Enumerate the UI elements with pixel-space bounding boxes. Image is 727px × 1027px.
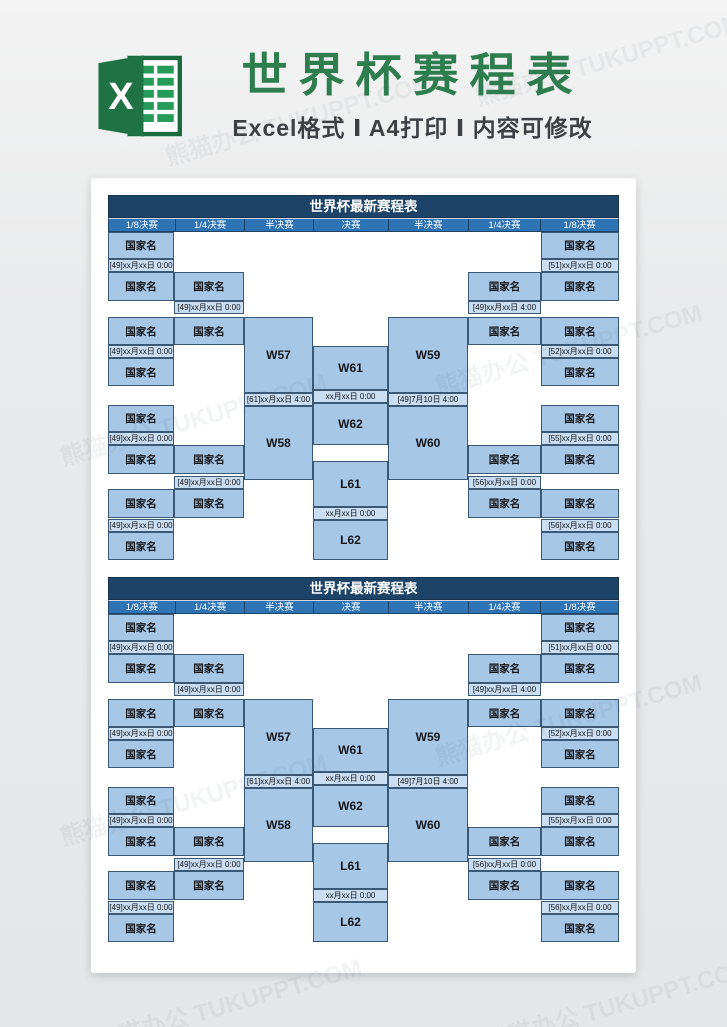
match-cell-w61[interactable]: W61 [313,346,388,390]
team-name-cell[interactable]: 国家名 [468,871,541,900]
match-cell-l61[interactable]: L61 [313,461,388,507]
round-header-right-1-4: 1/4决赛 [468,219,541,232]
match-cell-w57[interactable]: W57 [244,317,313,393]
match-date-cell[interactable]: [49]xx月xx日 0:00 [108,814,174,827]
team-name-cell[interactable]: 国家名 [468,317,541,345]
match-date-cell[interactable]: [49]xx月xx日 0:00 [174,476,244,489]
round-header-row: 1/8决赛 1/4决赛 半决赛 决赛 半决赛 1/4决赛 1/8决赛 [108,218,619,232]
team-name-cell[interactable]: 国家名 [468,445,541,474]
match-cell-w59[interactable]: W59 [388,317,468,393]
table-title: 世界杯最新赛程表 [108,195,619,218]
round-header-left-1-4: 1/4决赛 [175,601,245,614]
match-cell-w59[interactable]: W59 [388,699,468,775]
team-name-cell[interactable]: 国家名 [108,445,174,474]
sheet-page: 世界杯最新赛程表 1/8决赛 1/4决赛 半决赛 决赛 半决赛 1/4决赛 1/… [91,178,636,973]
team-name-cell[interactable]: 国家名 [174,317,244,345]
match-cell-l62[interactable]: L62 [313,520,388,560]
match-date-cell[interactable]: [49]xx月xx日 0:00 [108,727,174,740]
svg-text:X: X [108,76,134,118]
team-name-cell[interactable]: 国家名 [108,358,174,386]
round-header-final: 决赛 [313,601,388,614]
team-name-cell[interactable]: 国家名 [108,489,174,518]
match-date-cell[interactable]: [56]xx月xx日 0:00 [541,519,619,532]
match-date-cell[interactable]: [49]xx月xx日 0:00 [174,858,244,871]
team-name-cell[interactable]: 国家名 [541,914,619,942]
team-name-cell[interactable]: 国家名 [541,740,619,768]
match-date-cell[interactable]: [55]xx月xx日 0:00 [541,814,619,827]
team-name-cell[interactable]: 国家名 [108,654,174,683]
match-cell-w62[interactable]: W62 [313,403,388,445]
team-name-cell[interactable]: 国家名 [541,699,619,727]
bracket-table-bottom: 世界杯最新赛程表 1/8决赛 1/4决赛 半决赛 决赛 半决赛 1/4决赛 1/… [108,577,619,943]
team-name-cell[interactable]: 国家名 [108,232,174,259]
team-name-cell[interactable]: 国家名 [108,787,174,814]
match-cell-w60[interactable]: W60 [388,406,468,480]
page-title: 世界杯赛程表 [190,48,635,102]
banner-text: 世界杯赛程表 Excel格式 Ⅰ A4打印 Ⅰ 内容可修改 [190,48,635,143]
screenshot-root: 熊猫办公 TUKUPPT.COM 熊猫办公 TUKUPPT.COM X 世界杯赛… [0,0,727,1027]
match-date-cell[interactable]: [56]xx月xx日 0:00 [468,476,541,489]
page-subtitle: Excel格式 Ⅰ A4打印 Ⅰ 内容可修改 [190,109,635,143]
team-name-cell[interactable]: 国家名 [108,532,174,560]
round-header-left-1-8: 1/8决赛 [109,601,175,614]
bracket-grid: 国家名 [49]xx月xx日 0:00 国家名 国家名 [49]xx月xx日 0… [108,232,619,561]
team-name-cell[interactable]: 国家名 [541,827,619,856]
team-name-cell[interactable]: 国家名 [108,405,174,432]
round-header-right-1-8: 1/8决赛 [540,219,618,232]
match-cell-w60[interactable]: W60 [388,788,468,862]
round-header-row: 1/8决赛 1/4决赛 半决赛 决赛 半决赛 1/4决赛 1/8决赛 [108,600,619,614]
team-name-cell[interactable]: 国家名 [174,445,244,474]
team-name-cell[interactable]: 国家名 [108,740,174,768]
team-name-cell[interactable]: 国家名 [541,358,619,386]
team-name-cell[interactable]: 国家名 [108,614,174,641]
match-date-cell[interactable]: [55]xx月xx日 0:00 [541,432,619,445]
round-header-left-semi: 半决赛 [244,219,313,232]
team-name-cell[interactable]: 国家名 [541,232,619,259]
match-cell-l62[interactable]: L62 [313,902,388,942]
team-name-cell[interactable]: 国家名 [541,871,619,900]
team-name-cell[interactable]: 国家名 [541,272,619,301]
match-date-cell[interactable]: [56]xx月xx日 0:00 [468,858,541,871]
team-name-cell[interactable]: 国家名 [468,699,541,727]
match-date-cell[interactable]: [49]xx月xx日 0:00 [108,259,174,272]
round-header-right-semi: 半决赛 [388,601,468,614]
team-name-cell[interactable]: 国家名 [174,489,244,518]
match-date-cell[interactable]: [52]xx月xx日 0:00 [541,345,619,358]
team-name-cell[interactable]: 国家名 [174,827,244,856]
team-name-cell[interactable]: 国家名 [108,914,174,942]
match-cell-w58[interactable]: W58 [244,788,313,862]
team-name-cell[interactable]: 国家名 [468,654,541,683]
match-date-cell[interactable]: [61]xx月xx日 4:00 [244,775,313,788]
team-name-cell[interactable]: 国家名 [468,489,541,518]
team-name-cell[interactable]: 国家名 [174,272,244,301]
match-cell-l61[interactable]: L61 [313,843,388,889]
team-name-cell[interactable]: 国家名 [541,405,619,432]
match-date-cell[interactable]: xx月xx日 0:00 [313,772,388,785]
team-name-cell[interactable]: 国家名 [541,532,619,560]
match-date-cell[interactable]: [49]xx月xx日 0:00 [108,432,174,445]
team-name-cell[interactable]: 国家名 [468,827,541,856]
match-date-cell[interactable]: [49]xx月xx日 4:00 [468,301,541,314]
round-header-right-1-8: 1/8决赛 [540,601,618,614]
team-name-cell[interactable]: 国家名 [108,699,174,727]
match-date-cell[interactable]: [51]xx月xx日 0:00 [541,259,619,272]
match-date-cell[interactable]: [49]xx月xx日 4:00 [468,683,541,696]
match-date-cell[interactable]: [49]7月10日 4:00 [388,393,468,406]
match-date-cell[interactable]: [49]xx月xx日 0:00 [108,901,174,914]
match-date-cell[interactable]: [49]xx月xx日 0:00 [174,683,244,696]
round-header-left-semi: 半决赛 [244,601,313,614]
team-name-cell[interactable]: 国家名 [541,445,619,474]
team-name-cell[interactable]: 国家名 [108,272,174,301]
team-name-cell[interactable]: 国家名 [174,699,244,727]
match-date-cell[interactable]: xx月xx日 0:00 [313,889,388,902]
match-date-cell[interactable]: [51]xx月xx日 0:00 [541,641,619,654]
team-name-cell[interactable]: 国家名 [174,654,244,683]
bracket-grid: 国家名 [49]xx月xx日 0:00 国家名 国家名 [49]xx月xx日 0… [108,614,619,943]
round-header-right-1-4: 1/4决赛 [468,601,541,614]
round-header-left-1-4: 1/4决赛 [175,219,245,232]
match-date-cell[interactable]: [49]7月10日 4:00 [388,775,468,788]
team-name-cell[interactable]: 国家名 [108,871,174,900]
match-date-cell[interactable]: [61]xx月xx日 4:00 [244,393,313,406]
match-date-cell[interactable]: xx月xx日 0:00 [313,390,388,403]
banner: 熊猫办公 TUKUPPT.COM 熊猫办公 TUKUPPT.COM X 世界杯赛… [0,0,727,178]
round-header-right-semi: 半决赛 [388,219,468,232]
team-name-cell[interactable]: 国家名 [468,272,541,301]
team-name-cell[interactable]: 国家名 [541,317,619,345]
team-name-cell[interactable]: 国家名 [541,787,619,814]
match-date-cell[interactable]: [49]xx月xx日 0:00 [108,345,174,358]
match-date-cell[interactable]: [49]xx月xx日 0:00 [108,519,174,532]
team-name-cell[interactable]: 国家名 [174,871,244,900]
match-cell-w58[interactable]: W58 [244,406,313,480]
table-title: 世界杯最新赛程表 [108,577,619,600]
match-date-cell[interactable]: [52]xx月xx日 0:00 [541,727,619,740]
match-cell-w57[interactable]: W57 [244,699,313,775]
team-name-cell[interactable]: 国家名 [108,317,174,345]
round-header-final: 决赛 [313,219,388,232]
team-name-cell[interactable]: 国家名 [541,654,619,683]
match-cell-w62[interactable]: W62 [313,785,388,827]
excel-icon: X [95,52,185,140]
match-date-cell[interactable]: [49]xx月xx日 0:00 [174,301,244,314]
match-date-cell[interactable]: xx月xx日 0:00 [313,507,388,520]
team-name-cell[interactable]: 国家名 [541,614,619,641]
match-cell-w61[interactable]: W61 [313,728,388,772]
team-name-cell[interactable]: 国家名 [108,827,174,856]
match-date-cell[interactable]: [56]xx月xx日 0:00 [541,901,619,914]
round-header-left-1-8: 1/8决赛 [109,219,175,232]
match-date-cell[interactable]: [49]xx月xx日 0:00 [108,641,174,654]
bracket-table-top: 世界杯最新赛程表 1/8决赛 1/4决赛 半决赛 决赛 半决赛 1/4决赛 1/… [108,195,619,561]
team-name-cell[interactable]: 国家名 [541,489,619,518]
